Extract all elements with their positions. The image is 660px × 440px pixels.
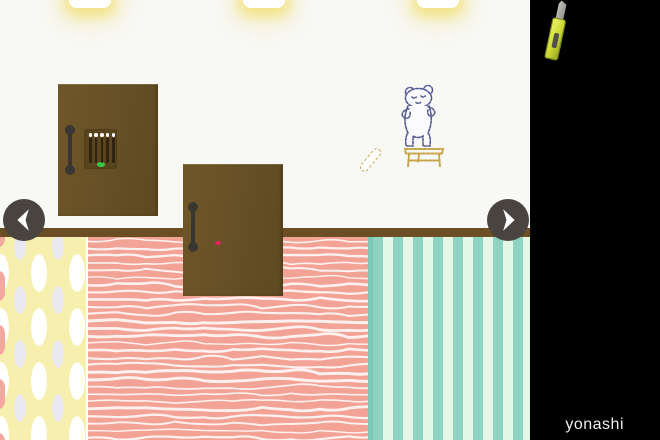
turn-left-button[interactable] [3,199,45,241]
door-handle [188,202,198,252]
floor-edge-pattern [0,237,5,440]
lever-slot[interactable] [112,138,115,163]
inventory-item-cutter[interactable] [540,0,582,63]
ceiling-light [243,0,285,8]
door-left[interactable] [58,84,158,216]
bear-on-stool-drawing[interactable] [397,84,449,170]
lever-knob[interactable] [100,133,104,137]
inventory-panel: yonashi [530,0,660,440]
stick-drawing[interactable] [358,146,383,173]
lever-knob[interactable] [106,133,110,137]
floor-section-dotted-yellow [0,237,88,440]
keypad-lock[interactable] [206,214,229,238]
lever-knob[interactable] [89,133,93,137]
ceiling-light [69,0,111,8]
room-view [0,0,530,440]
lever-slot[interactable] [106,138,109,163]
lever-lock-panel[interactable] [84,129,117,169]
game-screen: yonashi [0,0,660,440]
lever-knob[interactable] [112,133,116,137]
chevron-left-icon [9,205,39,235]
lever-slot[interactable] [89,138,92,163]
lock-status-light-red [215,241,221,245]
ceiling-light [417,0,459,8]
lever-slot[interactable] [101,138,104,163]
floor-section-striped-teal [368,237,530,440]
turn-right-button[interactable] [487,199,529,241]
door-handle [65,125,75,175]
lever-knob[interactable] [94,133,98,137]
chevron-right-icon [493,205,523,235]
lever-slot[interactable] [95,138,98,163]
credit-text: yonashi [565,416,624,434]
door-right[interactable] [183,164,283,296]
